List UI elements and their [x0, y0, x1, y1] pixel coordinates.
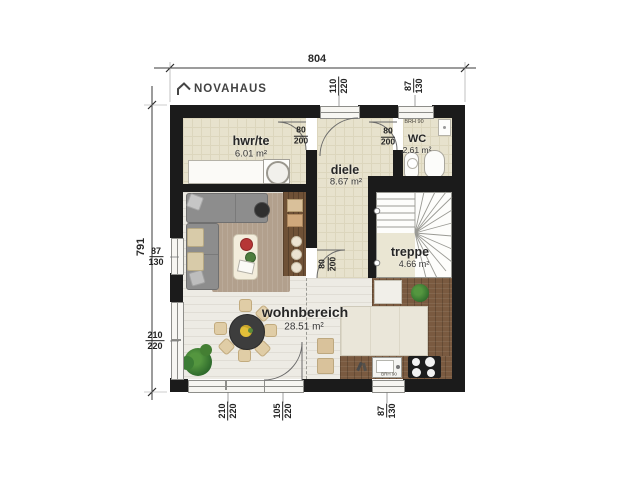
toilet-bowl [407, 158, 418, 169]
bar-stool [317, 358, 334, 374]
floor-pot [254, 202, 270, 218]
floor-plan: NOVAHAUS 804 791 hwr/te 6.01 m² diele 8.… [0, 0, 640, 480]
plant-leaf [200, 344, 212, 356]
stove-burner [427, 369, 435, 377]
kitchen-island [340, 306, 428, 356]
sideboard-box [287, 214, 303, 227]
left-window-lower [171, 302, 184, 380]
left-window-lower-size: 210 220 [145, 330, 164, 352]
room-label-wc: WC [408, 133, 426, 145]
wall-left [170, 105, 183, 238]
wall-top [170, 105, 320, 118]
wall-bottom [302, 379, 372, 392]
kitchen-counter-right [428, 306, 452, 356]
bottom-window [188, 380, 266, 393]
wc-window [398, 106, 434, 119]
room-label-treppe: treppe [391, 245, 429, 259]
dining-chair [214, 322, 227, 335]
wall-hwrte-wohnbereich [183, 184, 317, 192]
kitchen-window [372, 380, 405, 393]
total-height-dimension: 791 [135, 238, 147, 256]
total-width-dimension: 804 [308, 53, 326, 65]
hwrte-door-size: 80 200 [292, 126, 310, 147]
dining-chair [239, 299, 252, 312]
brand-name: NOVAHAUS [194, 83, 267, 95]
wc-window-size: 87 130 [403, 76, 425, 95]
sideboard-box [287, 199, 303, 212]
left-window-upper [171, 238, 184, 275]
bar-stool [317, 338, 334, 354]
wc-washbasin-dot [443, 126, 446, 129]
wall-bottom [170, 379, 188, 392]
kitchen-parapet-label: BRH 90 [381, 372, 397, 377]
table-flowers-leaf [248, 328, 253, 333]
red-flower-decor [240, 238, 253, 251]
wall-wohnbereich-diele [306, 192, 317, 248]
room-area-wohnbereich: 28.51 m² [284, 322, 323, 333]
terrace-door-size: 105 220 [272, 401, 294, 420]
wall-stairs-left [368, 192, 376, 278]
wc-parapet-label: BRH 90 [404, 119, 423, 125]
brand-logo: NOVAHAUS [176, 82, 267, 96]
sofa-cushion [187, 228, 204, 247]
terrace-door-glazing [264, 380, 304, 393]
wall-left [170, 273, 183, 302]
stove-burner [412, 358, 420, 366]
kitchen-window-size: 87 130 [376, 401, 398, 420]
house-icon [176, 82, 191, 96]
kitchen-cutting-board [374, 280, 402, 304]
dining-chair [264, 324, 277, 337]
room-area-hwrte: 6.01 m² [235, 149, 267, 160]
wall-diele-wc [393, 150, 403, 178]
sideboard-bowl [291, 262, 302, 273]
dining-chair [238, 349, 251, 362]
wc-door-size: 80 200 [379, 127, 397, 148]
room-area-treppe: 4.66 m² [399, 259, 430, 269]
window-mullion [225, 381, 227, 390]
washing-machine-drum [266, 161, 290, 185]
bottom-window-size: 210 220 [217, 401, 239, 420]
room-area-wc: 2.61 m² [403, 145, 432, 155]
room-label-wohnbereich: wohnbereich [262, 304, 348, 320]
left-window-upper-size: 87 130 [146, 246, 165, 268]
wall-top [358, 105, 398, 118]
wall-right [452, 105, 465, 392]
sideboard-bowl [291, 249, 302, 260]
entry-door-size: 110 220 [328, 76, 350, 95]
stove-burner [425, 357, 435, 367]
room-label-hwrte: hwr/te [233, 134, 270, 148]
kitchen-faucet [396, 365, 400, 369]
wohnbereich-door-size: 80 200 [318, 255, 339, 273]
sideboard-bowl [291, 236, 302, 247]
window-mullion [172, 339, 181, 341]
room-area-diele: 8.67 m² [330, 177, 362, 188]
wall-below-wc [368, 176, 452, 192]
room-label-diele: diele [331, 163, 360, 177]
kitchen-plant [411, 284, 429, 302]
stove-burner [412, 368, 421, 377]
entry-door-glazing [320, 106, 360, 119]
sofa-cushion [187, 252, 204, 271]
